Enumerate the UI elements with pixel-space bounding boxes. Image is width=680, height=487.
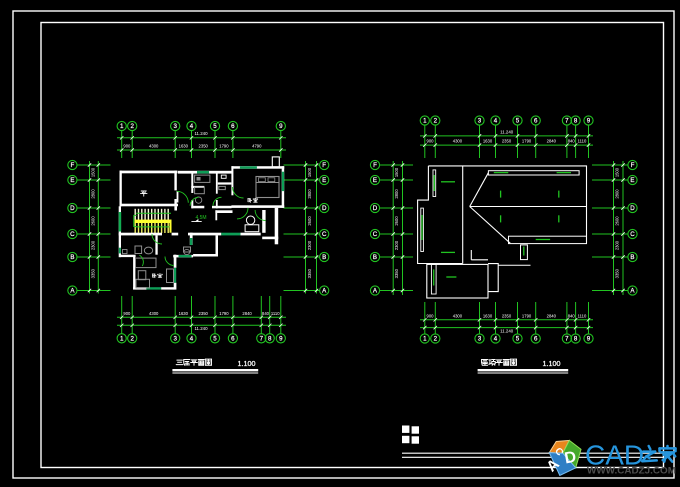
svg-text:1: 1 (120, 336, 124, 343)
svg-text:2840: 2840 (547, 314, 557, 319)
svg-text:1500: 1500 (394, 167, 399, 177)
svg-text:4: 4 (190, 123, 194, 130)
svg-text:2600: 2600 (91, 216, 96, 226)
svg-text:1: 1 (423, 336, 427, 343)
svg-text:B: B (373, 254, 377, 261)
svg-text:11.240: 11.240 (500, 130, 514, 135)
svg-text:E: E (630, 177, 634, 184)
svg-text:1630: 1630 (179, 143, 189, 148)
svg-text:1500: 1500 (91, 167, 96, 177)
svg-text:3350: 3350 (91, 268, 96, 278)
svg-text:3: 3 (173, 336, 177, 343)
svg-text:WWW.CADZJ.COM: WWW.CADZJ.COM (587, 466, 676, 477)
svg-text:1.100: 1.100 (238, 359, 256, 368)
svg-text:6: 6 (534, 118, 538, 125)
svg-text:2: 2 (130, 336, 134, 343)
svg-text:2800: 2800 (394, 189, 399, 199)
svg-text:1110: 1110 (271, 311, 280, 316)
svg-text:1110: 1110 (578, 314, 587, 319)
svg-text:E: E (70, 177, 74, 184)
svg-text:4: 4 (494, 336, 498, 343)
svg-text:5: 5 (516, 336, 520, 343)
svg-text:1630: 1630 (179, 311, 189, 316)
svg-text:1500: 1500 (614, 167, 619, 177)
svg-text:E: E (373, 177, 377, 184)
svg-text:840: 840 (568, 139, 576, 144)
svg-text:5: 5 (213, 336, 217, 343)
svg-text:4300: 4300 (453, 314, 463, 319)
svg-text:1: 1 (120, 123, 124, 130)
svg-text:7: 7 (565, 336, 569, 343)
svg-text:B: B (70, 254, 74, 261)
svg-text:1630: 1630 (483, 314, 493, 319)
svg-text:2600: 2600 (307, 216, 312, 226)
svg-text:5: 5 (213, 123, 217, 130)
svg-text:2: 2 (434, 118, 438, 125)
svg-text:840: 840 (568, 314, 576, 319)
svg-text:900: 900 (123, 143, 131, 148)
svg-text:2800: 2800 (614, 189, 619, 199)
svg-text:4300: 4300 (453, 139, 463, 144)
svg-text:C: C (373, 231, 378, 238)
svg-text:E: E (322, 177, 326, 184)
svg-text:2300: 2300 (614, 240, 619, 250)
svg-text:2350: 2350 (502, 139, 512, 144)
svg-text:D: D (70, 205, 75, 212)
svg-text:4300: 4300 (149, 311, 159, 316)
svg-text:2800: 2800 (307, 189, 312, 199)
svg-text:900: 900 (123, 311, 131, 316)
svg-text:4: 4 (494, 118, 498, 125)
svg-text:C: C (322, 231, 327, 238)
svg-text:2840: 2840 (547, 139, 557, 144)
svg-text:D: D (630, 205, 635, 212)
svg-text:4: 4 (190, 336, 194, 343)
svg-text:D: D (373, 205, 378, 212)
svg-text:2600: 2600 (394, 216, 399, 226)
svg-text:1: 1 (423, 118, 427, 125)
svg-text:900: 900 (427, 314, 435, 319)
svg-text:C: C (70, 231, 75, 238)
svg-text:2350: 2350 (502, 314, 512, 319)
svg-text:1630: 1630 (483, 139, 493, 144)
svg-text:7: 7 (565, 118, 569, 125)
svg-text:1500: 1500 (307, 167, 312, 177)
svg-text:11.240: 11.240 (194, 326, 208, 331)
svg-text:8: 8 (268, 336, 272, 343)
svg-text:B: B (630, 254, 634, 261)
svg-text:6: 6 (231, 336, 235, 343)
svg-text:F: F (373, 162, 377, 169)
svg-text:2: 2 (434, 336, 438, 343)
svg-text:1790: 1790 (219, 143, 229, 148)
svg-text:840: 840 (262, 311, 270, 316)
svg-text:5: 5 (516, 118, 520, 125)
svg-text:2840: 2840 (242, 311, 252, 316)
svg-text:8: 8 (574, 336, 578, 343)
svg-text:7: 7 (260, 336, 264, 343)
svg-text:2300: 2300 (91, 240, 96, 250)
svg-text:C: C (630, 231, 635, 238)
svg-text:3350: 3350 (307, 268, 312, 278)
svg-text:F: F (322, 162, 326, 169)
svg-text:2300: 2300 (307, 240, 312, 250)
svg-text:1790: 1790 (522, 314, 532, 319)
svg-text:900: 900 (427, 139, 435, 144)
svg-text:3: 3 (478, 118, 482, 125)
svg-text:1.100: 1.100 (543, 359, 561, 368)
svg-text:F: F (71, 162, 75, 169)
svg-text:9: 9 (587, 336, 591, 343)
svg-text:D: D (322, 205, 327, 212)
svg-text:2350: 2350 (199, 311, 209, 316)
svg-text:2600: 2600 (614, 216, 619, 226)
svg-text:2800: 2800 (91, 189, 96, 199)
svg-text:9: 9 (279, 123, 283, 130)
svg-text:3: 3 (478, 336, 482, 343)
svg-text:1790: 1790 (522, 139, 532, 144)
svg-text:8: 8 (574, 118, 578, 125)
svg-text:11.240: 11.240 (500, 329, 514, 334)
svg-text:4790: 4790 (252, 143, 262, 148)
svg-text:1110: 1110 (578, 139, 587, 144)
svg-text:11.240: 11.240 (194, 131, 208, 136)
svg-text:F: F (631, 162, 635, 169)
svg-text:1790: 1790 (219, 311, 229, 316)
svg-text:6: 6 (534, 336, 538, 343)
svg-text:3350: 3350 (394, 268, 399, 278)
svg-text:9: 9 (279, 336, 283, 343)
svg-text:B: B (322, 254, 326, 261)
svg-text:9: 9 (587, 118, 591, 125)
svg-text:3350: 3350 (614, 268, 619, 278)
svg-text:4300: 4300 (149, 143, 159, 148)
svg-text:2300: 2300 (394, 240, 399, 250)
svg-text:2: 2 (130, 123, 134, 130)
svg-text:2350: 2350 (199, 143, 209, 148)
svg-text:3: 3 (173, 123, 177, 130)
svg-text:6: 6 (231, 123, 235, 130)
